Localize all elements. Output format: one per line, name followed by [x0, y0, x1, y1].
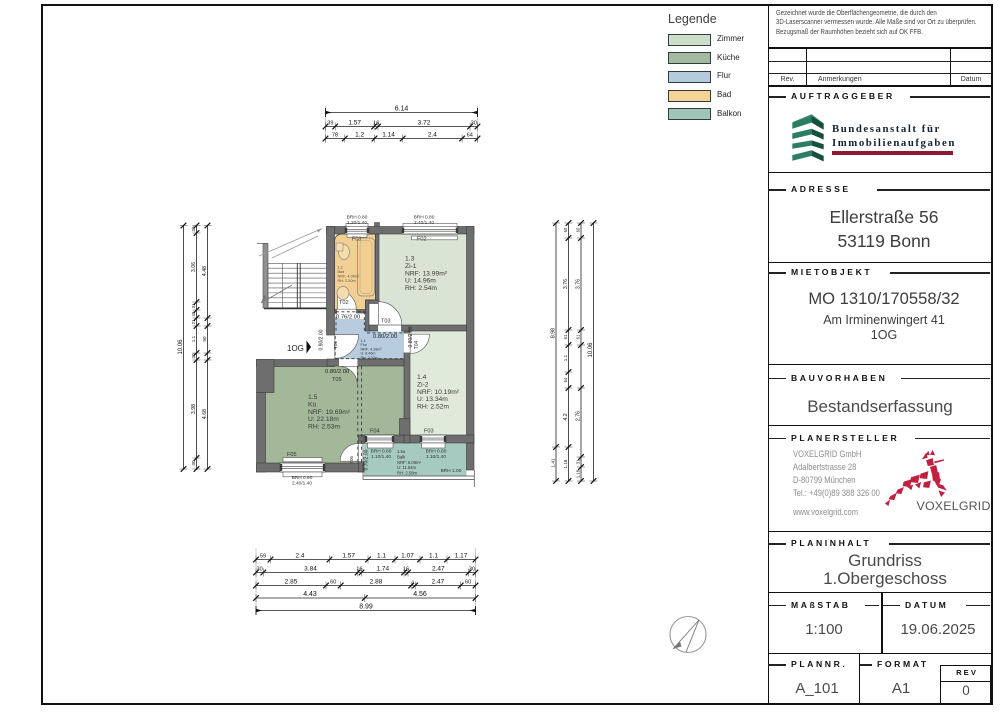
svg-text:1.41: 1.41 — [551, 458, 557, 468]
svg-text:2.88: 2.88 — [370, 578, 383, 585]
svg-text:16: 16 — [356, 566, 362, 572]
svg-text:1.2: 1.2 — [338, 266, 343, 270]
svg-text:1.1: 1.1 — [563, 354, 568, 361]
svg-text:4.43: 4.43 — [303, 591, 317, 598]
svg-text:3.76: 3.76 — [563, 279, 569, 289]
svg-text:T03: T03 — [381, 319, 391, 325]
svg-text:0.80/2.00: 0.80/2.00 — [325, 369, 349, 375]
svg-text:F03: F03 — [424, 429, 434, 435]
svg-text:Kü: Kü — [308, 401, 316, 408]
svg-text:1.20/1.40: 1.20/1.40 — [347, 220, 367, 226]
svg-text:60: 60 — [563, 227, 568, 232]
svg-text:1.74: 1.74 — [376, 565, 389, 572]
svg-text:0.90/2.00: 0.90/2.00 — [319, 329, 325, 350]
svg-text:21: 21 — [191, 319, 196, 324]
svg-text:3.84: 3.84 — [304, 565, 317, 572]
svg-text:NRF: 6.08m²: NRF: 6.08m² — [397, 460, 422, 465]
svg-text:3.72: 3.72 — [418, 119, 431, 126]
svg-text:1.1: 1.1 — [191, 335, 196, 342]
svg-text:NRF: 4.06m²: NRF: 4.06m² — [338, 275, 360, 279]
svg-text:1.3: 1.3 — [405, 256, 415, 263]
svg-text:1.4: 1.4 — [417, 374, 427, 381]
svg-text:1.1: 1.1 — [377, 552, 386, 559]
svg-text:30: 30 — [256, 566, 262, 572]
svg-text:1.07: 1.07 — [401, 552, 414, 559]
svg-text:RH: 2.53m: RH: 2.53m — [308, 424, 340, 431]
svg-text:31: 31 — [576, 459, 581, 464]
svg-text:BRH 1.00: BRH 1.00 — [441, 468, 462, 474]
svg-text:U: 11.54m: U: 11.54m — [397, 465, 417, 470]
svg-text:2.4: 2.4 — [295, 552, 304, 559]
svg-text:BRH 0.80: BRH 0.80 — [371, 449, 392, 455]
svg-text:61: 61 — [563, 334, 568, 339]
svg-text:2.47: 2.47 — [432, 578, 445, 585]
svg-text:F04: F04 — [370, 429, 380, 435]
svg-text:4.68: 4.68 — [202, 409, 208, 419]
svg-text:BRH 0.80: BRH 0.80 — [292, 475, 313, 481]
svg-text:BRH 0.80: BRH 0.80 — [426, 449, 447, 455]
svg-text:59: 59 — [260, 553, 266, 559]
svg-text:0.76/2.00: 0.76/2.00 — [336, 315, 360, 321]
svg-text:8.98: 8.98 — [551, 328, 557, 338]
svg-text:1: 1 — [412, 579, 415, 584]
svg-text:RH: 2.52m: RH: 2.52m — [417, 404, 449, 411]
svg-text:BRH 0.80: BRH 0.80 — [347, 215, 368, 221]
svg-text:1.18: 1.18 — [576, 469, 581, 478]
svg-text:RH: 2.58m: RH: 2.58m — [397, 471, 418, 476]
svg-text:1.17: 1.17 — [455, 552, 468, 559]
svg-text:2.85: 2.85 — [285, 578, 298, 585]
svg-text:90: 90 — [202, 336, 207, 342]
svg-text:T06: T06 — [349, 456, 354, 464]
svg-text:4.56: 4.56 — [413, 591, 427, 598]
svg-text:2.40/1.40: 2.40/1.40 — [414, 220, 434, 226]
svg-text:BRH 0.80: BRH 0.80 — [414, 215, 435, 221]
svg-text:RH: 2.57m: RH: 2.57m — [361, 356, 379, 360]
svg-text:2.47: 2.47 — [432, 565, 445, 572]
svg-text:F01: F01 — [352, 237, 362, 243]
svg-text:Balk: Balk — [397, 454, 406, 459]
svg-text:T04: T04 — [414, 340, 420, 349]
svg-text:30: 30 — [191, 353, 196, 359]
svg-text:1.14: 1.14 — [382, 131, 395, 138]
svg-text:30: 30 — [191, 460, 196, 466]
svg-text:60: 60 — [576, 227, 581, 232]
svg-text:2.40/1.40: 2.40/1.40 — [292, 480, 312, 486]
svg-text:49: 49 — [191, 311, 196, 316]
svg-text:1.57: 1.57 — [342, 552, 355, 559]
svg-text:1.1: 1.1 — [429, 552, 438, 559]
svg-text:78: 78 — [332, 132, 338, 138]
svg-text:U: 14.96m: U: 14.96m — [405, 278, 436, 285]
svg-text:1OG: 1OG — [287, 344, 304, 353]
svg-text:1.18: 1.18 — [563, 459, 568, 468]
svg-text:T05: T05 — [332, 377, 342, 383]
svg-text:3.76: 3.76 — [576, 279, 582, 289]
svg-text:0.80/2.00: 0.80/2.00 — [373, 334, 397, 340]
svg-text:39: 39 — [327, 120, 333, 126]
svg-text:1.5a: 1.5a — [397, 449, 406, 454]
svg-text:16: 16 — [373, 120, 379, 126]
svg-text:10.06: 10.06 — [178, 339, 184, 355]
svg-text:60: 60 — [465, 579, 471, 585]
svg-text:1.57: 1.57 — [348, 119, 361, 126]
svg-text:Zi-2: Zi-2 — [417, 381, 429, 388]
svg-text:Bad: Bad — [338, 270, 345, 274]
svg-text:31: 31 — [191, 303, 196, 308]
svg-text:60: 60 — [330, 579, 336, 585]
svg-text:NRF: 10.19m²: NRF: 10.19m² — [417, 389, 460, 396]
svg-text:1.2: 1.2 — [355, 131, 364, 138]
svg-text:4.48: 4.48 — [202, 266, 208, 276]
svg-text:2.4: 2.4 — [428, 131, 437, 138]
svg-text:64: 64 — [467, 132, 473, 138]
svg-text:3.98: 3.98 — [191, 404, 197, 414]
svg-text:Zi-1: Zi-1 — [405, 263, 417, 270]
svg-text:61: 61 — [576, 334, 581, 339]
svg-text:0.70/2.00: 0.70/2.00 — [364, 449, 370, 470]
svg-text:T01: T01 — [333, 341, 338, 349]
svg-text:F05: F05 — [287, 452, 297, 458]
svg-text:30: 30 — [471, 120, 477, 126]
svg-text:RH: 2.54m: RH: 2.54m — [405, 285, 437, 292]
svg-text:U: 22.18m: U: 22.18m — [308, 416, 339, 423]
svg-text:NRF: 13.99m²: NRF: 13.99m² — [405, 270, 448, 277]
svg-text:30: 30 — [191, 226, 196, 232]
svg-text:30: 30 — [469, 566, 475, 572]
svg-text:10.06: 10.06 — [588, 342, 594, 358]
svg-text:8.99: 8.99 — [359, 603, 373, 610]
svg-text:3.06: 3.06 — [191, 262, 197, 272]
svg-text:4.2: 4.2 — [563, 413, 569, 420]
svg-text:1.10/1.40: 1.10/1.40 — [426, 454, 446, 460]
svg-text:RH: 2.50m: RH: 2.50m — [338, 279, 356, 283]
svg-text:1.10/1.40: 1.10/1.40 — [371, 454, 391, 460]
svg-text:U: 13.34m: U: 13.34m — [417, 396, 448, 403]
svg-text:16: 16 — [403, 566, 409, 572]
svg-text:NRF: 19.69m²: NRF: 19.69m² — [308, 409, 351, 416]
svg-text:2.76: 2.76 — [576, 411, 582, 421]
svg-text:1.5: 1.5 — [308, 394, 318, 401]
svg-text:T02: T02 — [339, 300, 349, 306]
svg-text:64: 64 — [563, 377, 568, 382]
svg-text:6.14: 6.14 — [395, 105, 409, 112]
svg-text:F02: F02 — [417, 237, 427, 243]
